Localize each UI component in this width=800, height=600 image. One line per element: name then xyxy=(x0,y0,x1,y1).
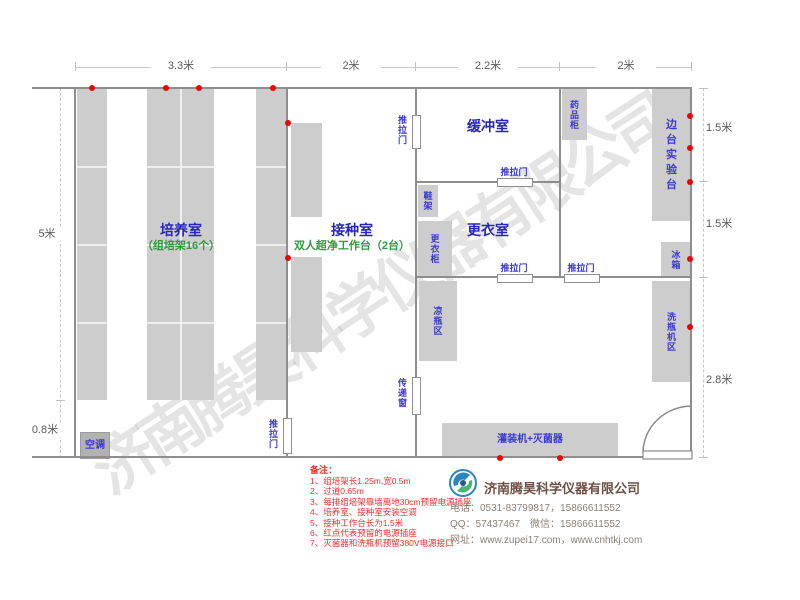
culture-rack-strip-1 xyxy=(77,88,107,400)
fridge-label: 冰箱 xyxy=(672,250,681,270)
note-item: 5、接种工作台长为1.5米 xyxy=(310,518,472,528)
note-item: 4、培养室、接种室安装空调 xyxy=(310,507,472,517)
bottle-washer-area-label: 洗瓶机区 xyxy=(667,312,676,352)
dim-tick xyxy=(56,400,65,401)
dim-left-bottom: 0.8米 xyxy=(26,424,64,437)
sliding-door-dressing-bottom xyxy=(497,274,533,283)
sliding-door-label: 推拉门 xyxy=(269,419,278,449)
clean-bench-1 xyxy=(291,123,322,217)
outlet-dot xyxy=(687,145,693,151)
shoe-rack: 鞋架 xyxy=(418,185,438,217)
room-inoculation-sub: 双人超净工作台（2台） xyxy=(272,239,432,253)
room-cultivation: 培养室 （组培架16个） xyxy=(106,222,256,253)
dim-tick xyxy=(699,277,708,278)
dim-left-height: 5米 xyxy=(30,228,64,241)
room-inoculation-name: 接种室 xyxy=(272,222,432,239)
dim-top-1: 3.3米 xyxy=(151,60,211,73)
filling-sterilizer-label: 灌装机+灭菌器 xyxy=(497,435,563,445)
dim-tick xyxy=(699,457,708,458)
outlet-dot xyxy=(270,85,276,91)
wall-bottom xyxy=(32,456,692,458)
dim-tick xyxy=(415,62,416,71)
outlet-dot xyxy=(89,85,95,91)
dim-top-2: 2米 xyxy=(321,60,381,73)
room-dressing: 更衣室 xyxy=(428,222,548,239)
dim-tick xyxy=(691,62,692,71)
bottle-washer-area: 洗瓶机区 xyxy=(652,281,691,382)
wall-left xyxy=(74,87,76,458)
air-conditioner: 空调 xyxy=(80,432,110,459)
air-conditioner-label: 空调 xyxy=(85,441,105,451)
medicine-cabinet: 药品柜 xyxy=(562,89,587,140)
shoe-rack-label: 鞋架 xyxy=(424,191,433,211)
pass-window-label: 传递窗 xyxy=(398,378,407,408)
note-item: 3、每排组培架靠墙离地30cm预留电源插座 xyxy=(310,497,472,507)
floor-plan-canvas: 济南腾昊科学仪器有限公司 3.3米 2米 2.2米 2米 5米 0.8米 1.5… xyxy=(0,0,800,600)
dim-right-1: 1.5米 xyxy=(706,122,744,135)
sliding-door-label: 推拉门 xyxy=(556,263,606,273)
company-logo-icon xyxy=(448,468,478,498)
pass-window xyxy=(412,377,421,415)
dim-line-left xyxy=(60,88,61,458)
company-qq-wechat: QQ：57437467 微信：15866611552 xyxy=(450,515,620,530)
outlet-dot xyxy=(285,120,291,126)
room-inoculation: 接种室 双人超净工作台（2台） xyxy=(272,222,432,253)
sliding-door-label: 推拉门 xyxy=(398,115,407,145)
room-cultivation-sub: （组培架16个） xyxy=(106,239,256,253)
dim-tick xyxy=(559,62,560,71)
swing-door xyxy=(640,400,696,460)
note-item: 7、灭菌器和洗瓶机预留380V电源接口 xyxy=(310,538,472,548)
outlet-dot xyxy=(557,455,563,461)
sliding-door-lab-bottom xyxy=(564,274,600,283)
dim-top-3: 2.2米 xyxy=(458,60,518,73)
sliding-door-label: 推拉门 xyxy=(489,167,539,177)
outlet-dot xyxy=(687,179,693,185)
dim-tick xyxy=(286,62,287,71)
dim-tick xyxy=(699,181,708,182)
company-name: 济南腾昊科学仪器有限公司 xyxy=(484,478,640,497)
sliding-door-cultivation-inoculation xyxy=(283,418,292,454)
side-lab-bench: 边台实验台 xyxy=(652,89,691,221)
outlet-dot xyxy=(687,256,693,262)
room-buffer: 缓冲室 xyxy=(428,118,548,135)
room-cultivation-name: 培养室 xyxy=(106,222,256,239)
wall-dressing-bottomroom xyxy=(416,276,691,278)
outlet-dot xyxy=(163,85,169,91)
clean-bench-2 xyxy=(291,257,322,352)
dim-tick xyxy=(75,62,76,71)
note-item: 6、红点代表预留的电源插座 xyxy=(310,528,472,538)
outlet-dot xyxy=(687,324,693,330)
filling-sterilizer-bench: 灌装机+灭菌器 xyxy=(442,423,618,457)
outlet-dot xyxy=(497,455,503,461)
dim-top-4: 2米 xyxy=(596,60,656,73)
wall-cultivation-inoculation xyxy=(286,88,288,457)
outlet-dot xyxy=(196,85,202,91)
sliding-door-buffer-dressing xyxy=(497,178,533,187)
side-lab-bench-label: 边台实验台 xyxy=(666,118,677,193)
sliding-door-label: 推拉门 xyxy=(489,263,539,273)
wall-dressing-bench xyxy=(559,88,561,278)
dim-line-right xyxy=(703,88,704,458)
medicine-cabinet-label: 药品柜 xyxy=(570,100,579,130)
room-buffer-name: 缓冲室 xyxy=(428,118,548,135)
company-phone: 电话：0531-83799817，15866611552 xyxy=(450,499,621,514)
room-dressing-name: 更衣室 xyxy=(428,222,548,239)
dim-right-3: 2.8米 xyxy=(706,374,744,387)
bottle-cooling-area-label: 凉瓶区 xyxy=(434,306,443,336)
dim-tick xyxy=(699,88,708,89)
outlet-dot xyxy=(687,113,693,119)
dim-right-2: 1.5米 xyxy=(706,218,744,231)
company-website: 网址：www.zupei17.com，www.cnhtkj.com xyxy=(450,531,642,546)
wall-buffer-dressing xyxy=(416,181,560,183)
wall-top xyxy=(32,87,692,89)
outlet-dot xyxy=(285,255,291,261)
bottle-cooling-area: 凉瓶区 xyxy=(419,281,457,361)
sliding-door-inoculation-buffer xyxy=(412,115,421,149)
